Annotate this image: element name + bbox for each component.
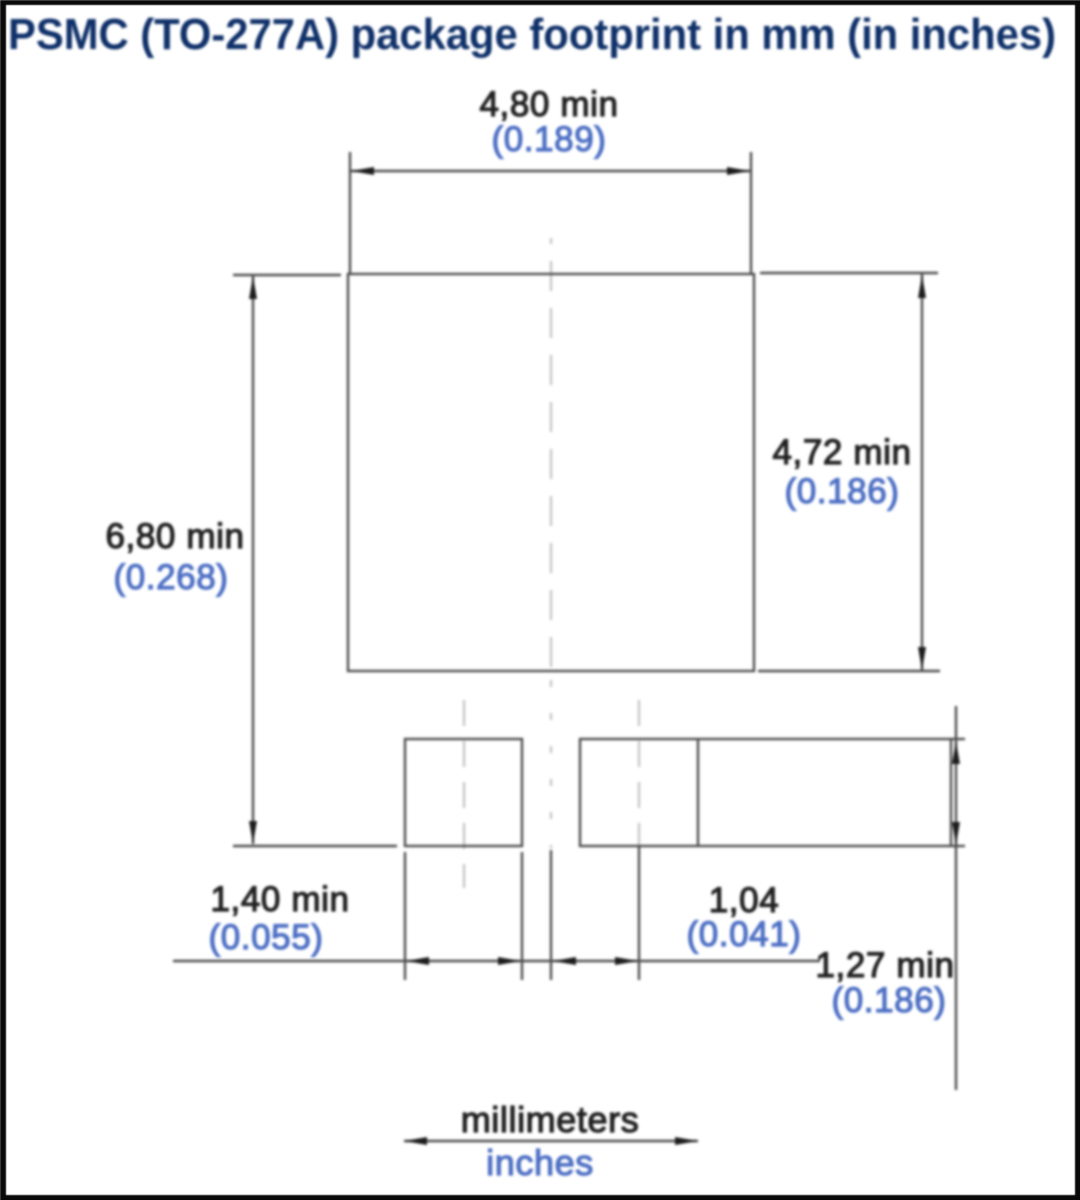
svg-text:4,80 min: 4,80 min	[479, 85, 618, 124]
svg-text:(0.186): (0.186)	[831, 981, 946, 1020]
svg-text:inches: inches	[486, 1142, 594, 1183]
svg-text:6,80 min: 6,80 min	[105, 517, 244, 556]
svg-text:millimeters: millimeters	[461, 1099, 640, 1140]
svg-text:1,27 min: 1,27 min	[815, 946, 954, 985]
svg-text:(0.186): (0.186)	[784, 472, 899, 511]
svg-text:(0.268): (0.268)	[113, 558, 228, 597]
svg-text:1,40 min: 1,40 min	[210, 880, 349, 919]
svg-text:(0.189): (0.189)	[491, 120, 606, 159]
svg-text:(0.041): (0.041)	[686, 915, 801, 954]
svg-text:(0.055): (0.055)	[208, 918, 323, 957]
svg-text:PSMC (TO-277A) package footpri: PSMC (TO-277A) package footprint in mm (…	[8, 10, 1056, 59]
svg-text:4,72 min: 4,72 min	[772, 433, 911, 472]
